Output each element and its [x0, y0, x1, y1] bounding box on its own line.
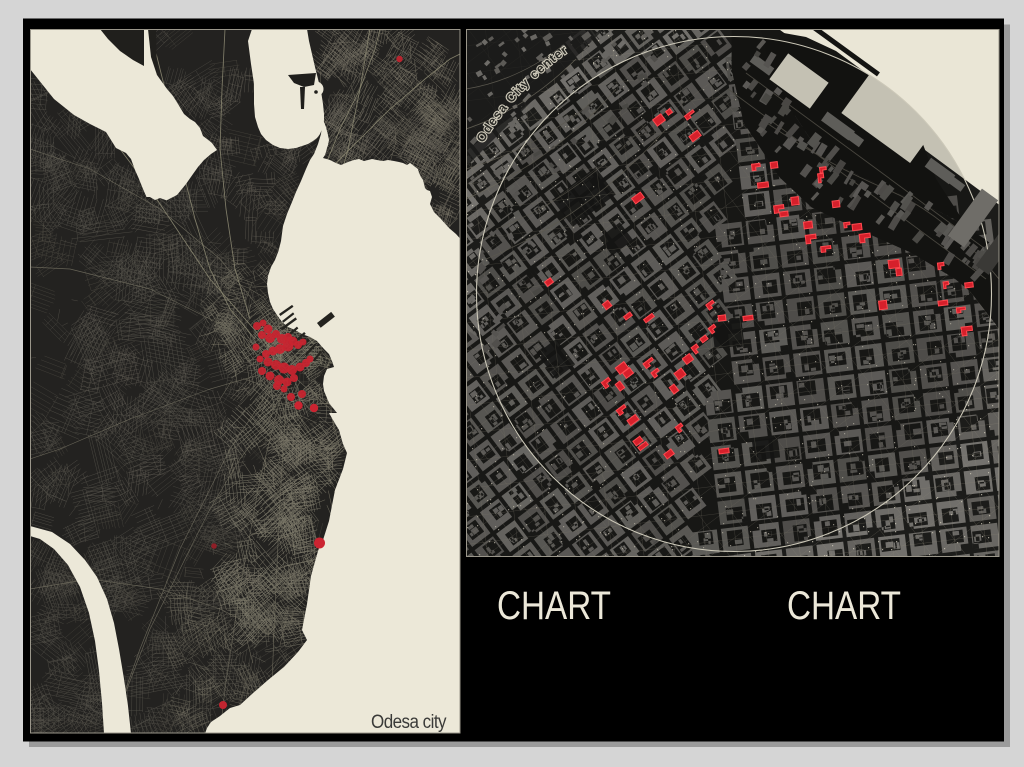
svg-text:CHART: CHART — [497, 584, 611, 628]
svg-text:Odesa city: Odesa city — [371, 712, 447, 733]
svg-text:CHART: CHART — [787, 584, 901, 628]
